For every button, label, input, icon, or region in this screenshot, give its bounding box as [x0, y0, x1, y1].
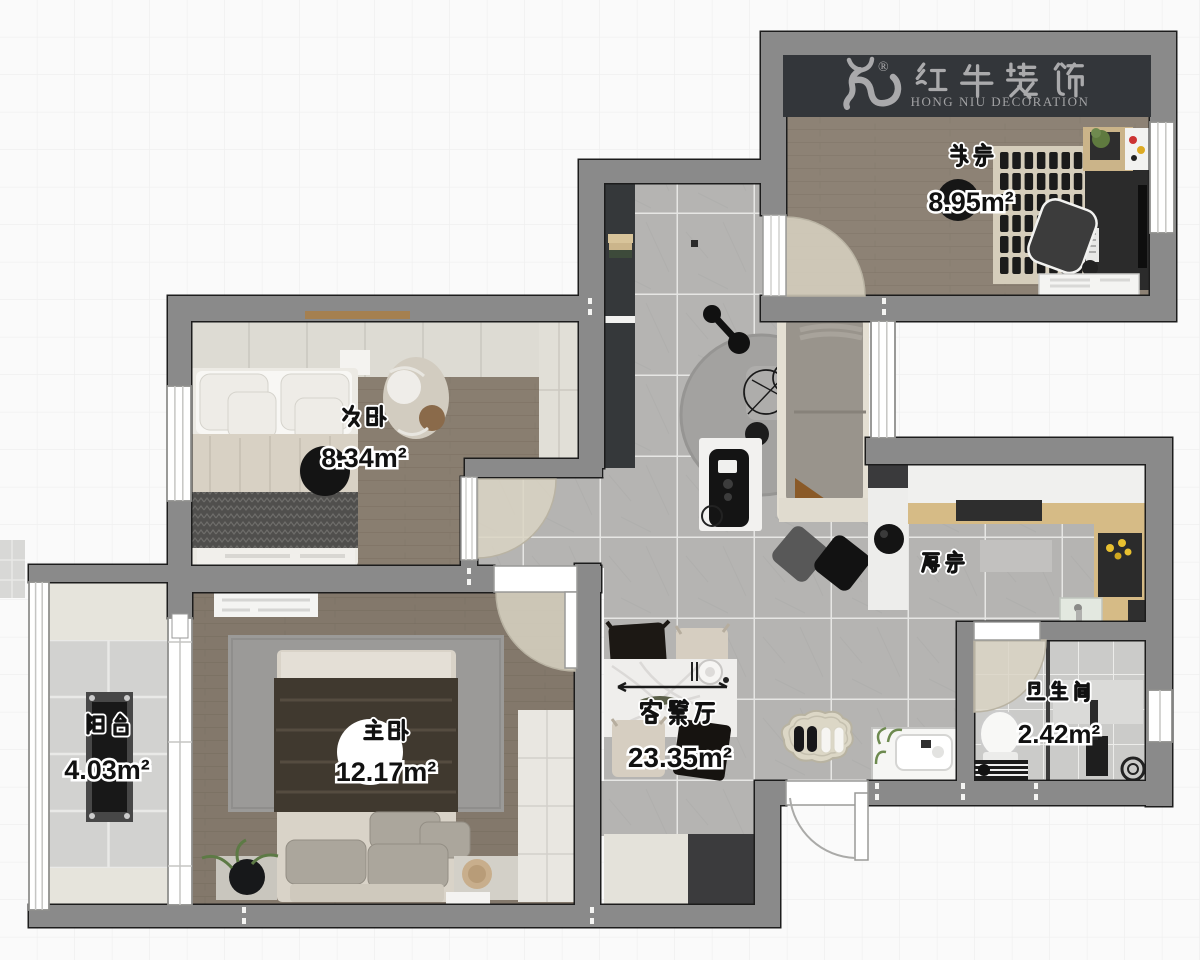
svg-text:8.34m²: 8.34m²: [321, 443, 407, 473]
svg-text:12.17m²: 12.17m²: [336, 757, 437, 787]
svg-text:23.35m²: 23.35m²: [628, 742, 732, 773]
svg-text:4.03m²: 4.03m²: [64, 755, 150, 785]
svg-text:8.95m²: 8.95m²: [928, 187, 1014, 217]
svg-text:2.42m²: 2.42m²: [1018, 719, 1101, 749]
svg-text:HONG NIU DECORATION: HONG NIU DECORATION: [911, 94, 1090, 109]
svg-text:®: ®: [878, 60, 889, 75]
